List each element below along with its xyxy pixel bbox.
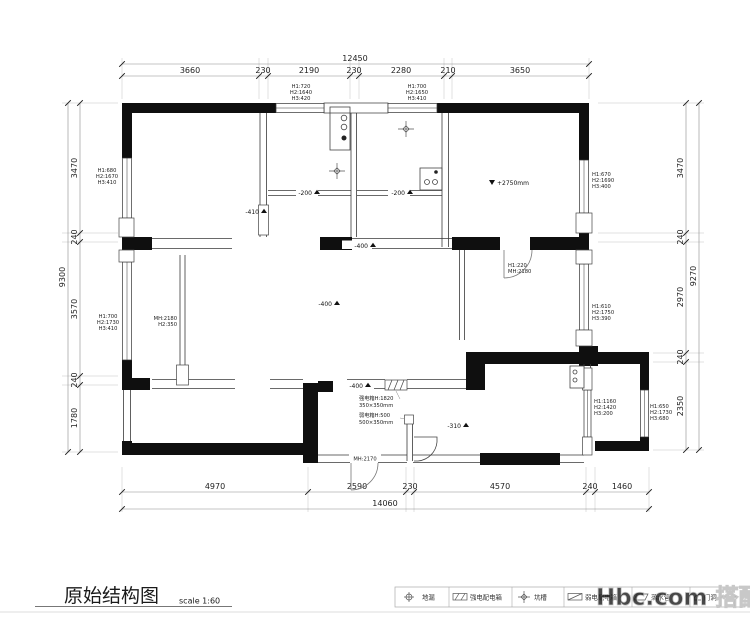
plumbing-shaft bbox=[330, 107, 350, 150]
radiator-box bbox=[570, 366, 584, 388]
legend-item-label: 强电配电箱 bbox=[470, 593, 503, 602]
floor-plan-sheet: 12450 3660 230 2190 230 2280 210 3650 14… bbox=[0, 0, 750, 625]
level-marker-room-a: -200 bbox=[298, 190, 320, 197]
level-text: -200 bbox=[391, 190, 405, 197]
level-marker-entry: -400 bbox=[344, 381, 374, 391]
dim-left-seg: 240 bbox=[70, 372, 79, 387]
floor-plan-drawing: 12450 3660 230 2190 230 2280 210 3650 14… bbox=[0, 0, 750, 625]
dim-bottom-seg: 4970 bbox=[205, 482, 225, 491]
level-marker-bath: -310 bbox=[447, 423, 469, 430]
dim-left-seg: 1780 bbox=[70, 408, 79, 428]
corner-basin-fixture bbox=[414, 437, 437, 461]
window-label: H3:400 bbox=[592, 184, 611, 190]
dim-right-seg: 2350 bbox=[676, 396, 685, 416]
scale-label: scale 1:60 bbox=[179, 597, 220, 606]
label-leader-lines bbox=[396, 391, 405, 419]
kitchen-fixture bbox=[420, 168, 442, 190]
dim-right-total: 9270 bbox=[689, 266, 698, 286]
door-label: MH:2180 bbox=[508, 269, 531, 275]
weak-power-box bbox=[405, 415, 414, 424]
dim-top-seg: 3650 bbox=[510, 66, 530, 75]
dim-right-seg: 2970 bbox=[676, 287, 685, 307]
dim-right-seg: 3470 bbox=[676, 158, 685, 178]
dim-bottom-seg: 240 bbox=[582, 482, 597, 491]
dim-bottom-seg: 230 bbox=[402, 482, 417, 491]
dim-top-seg: 230 bbox=[255, 66, 270, 75]
window-label: H3:410 bbox=[99, 326, 118, 332]
watermark: Hbc.com 搭配网 bbox=[596, 585, 750, 611]
dim-bottom-seg: 1460 bbox=[612, 482, 632, 491]
dim-left-seg: 3470 bbox=[70, 158, 79, 178]
partition-walls bbox=[124, 113, 591, 463]
flue-symbol bbox=[329, 163, 345, 179]
weak-box-label: 弱电箱H:500 bbox=[359, 411, 390, 419]
level-marker-room-b: -200 bbox=[391, 190, 413, 197]
dim-left-seg: 240 bbox=[70, 229, 79, 244]
wall-shaft-box bbox=[324, 103, 388, 113]
level-text: -410 bbox=[245, 209, 259, 216]
sheet-title: 原始结构图 bbox=[64, 585, 159, 607]
dim-top-seg: 3660 bbox=[180, 66, 200, 75]
bearing-walls bbox=[122, 103, 649, 465]
legend-item-label: 坑槽 bbox=[534, 593, 547, 602]
opening-label: H2:350 bbox=[158, 322, 177, 328]
level-text: -400 bbox=[349, 383, 363, 390]
level-marker-corridor: -400 bbox=[342, 241, 376, 251]
window-label: H3:680 bbox=[650, 416, 669, 422]
level-text: -400 bbox=[354, 243, 368, 250]
dim-top-seg: 2190 bbox=[299, 66, 319, 75]
equipment-labels: 强电箱H:1820 350×350mm 弱电箱H:500 500×350mm bbox=[359, 394, 393, 426]
dim-left-total: 9300 bbox=[58, 267, 67, 287]
level-text: +2750mm bbox=[497, 180, 529, 187]
level-text: -400 bbox=[318, 301, 332, 308]
strong-power-box bbox=[385, 380, 407, 390]
window-label: H3:410 bbox=[98, 180, 117, 186]
flue-symbol bbox=[398, 121, 414, 137]
dim-bottom-total: 14060 bbox=[372, 499, 397, 508]
level-text: -200 bbox=[298, 190, 312, 197]
strong-box-label: 强电箱H:1820 bbox=[359, 394, 393, 402]
level-marker-living: -400 bbox=[318, 301, 340, 308]
dim-left-seg: 3570 bbox=[70, 299, 79, 319]
window-label: H3:420 bbox=[292, 96, 311, 102]
ceiling-height-marker: +2750mm bbox=[489, 180, 529, 187]
dim-bottom-seg: 4570 bbox=[490, 482, 510, 491]
dim-top-total: 12450 bbox=[342, 54, 367, 63]
entry-door-label: MH:2170 bbox=[353, 457, 376, 463]
dim-right-seg: 240 bbox=[676, 349, 685, 364]
dim-top-seg: 230 bbox=[346, 66, 361, 75]
dimension-labels: 12450 3660 230 2190 230 2280 210 3650 14… bbox=[58, 54, 698, 508]
window-label: H3:410 bbox=[408, 96, 427, 102]
dim-right-seg: 240 bbox=[676, 229, 685, 244]
legend-item-label: 地漏 bbox=[422, 593, 435, 602]
window-label: H3:390 bbox=[592, 316, 611, 322]
level-text: -310 bbox=[447, 423, 461, 430]
dim-top-seg: 2280 bbox=[391, 66, 411, 75]
window-label: H3:200 bbox=[594, 411, 613, 417]
weak-box-label: 500×350mm bbox=[359, 420, 393, 426]
dim-top-seg: 210 bbox=[440, 66, 455, 75]
strong-box-label: 350×350mm bbox=[359, 403, 393, 409]
